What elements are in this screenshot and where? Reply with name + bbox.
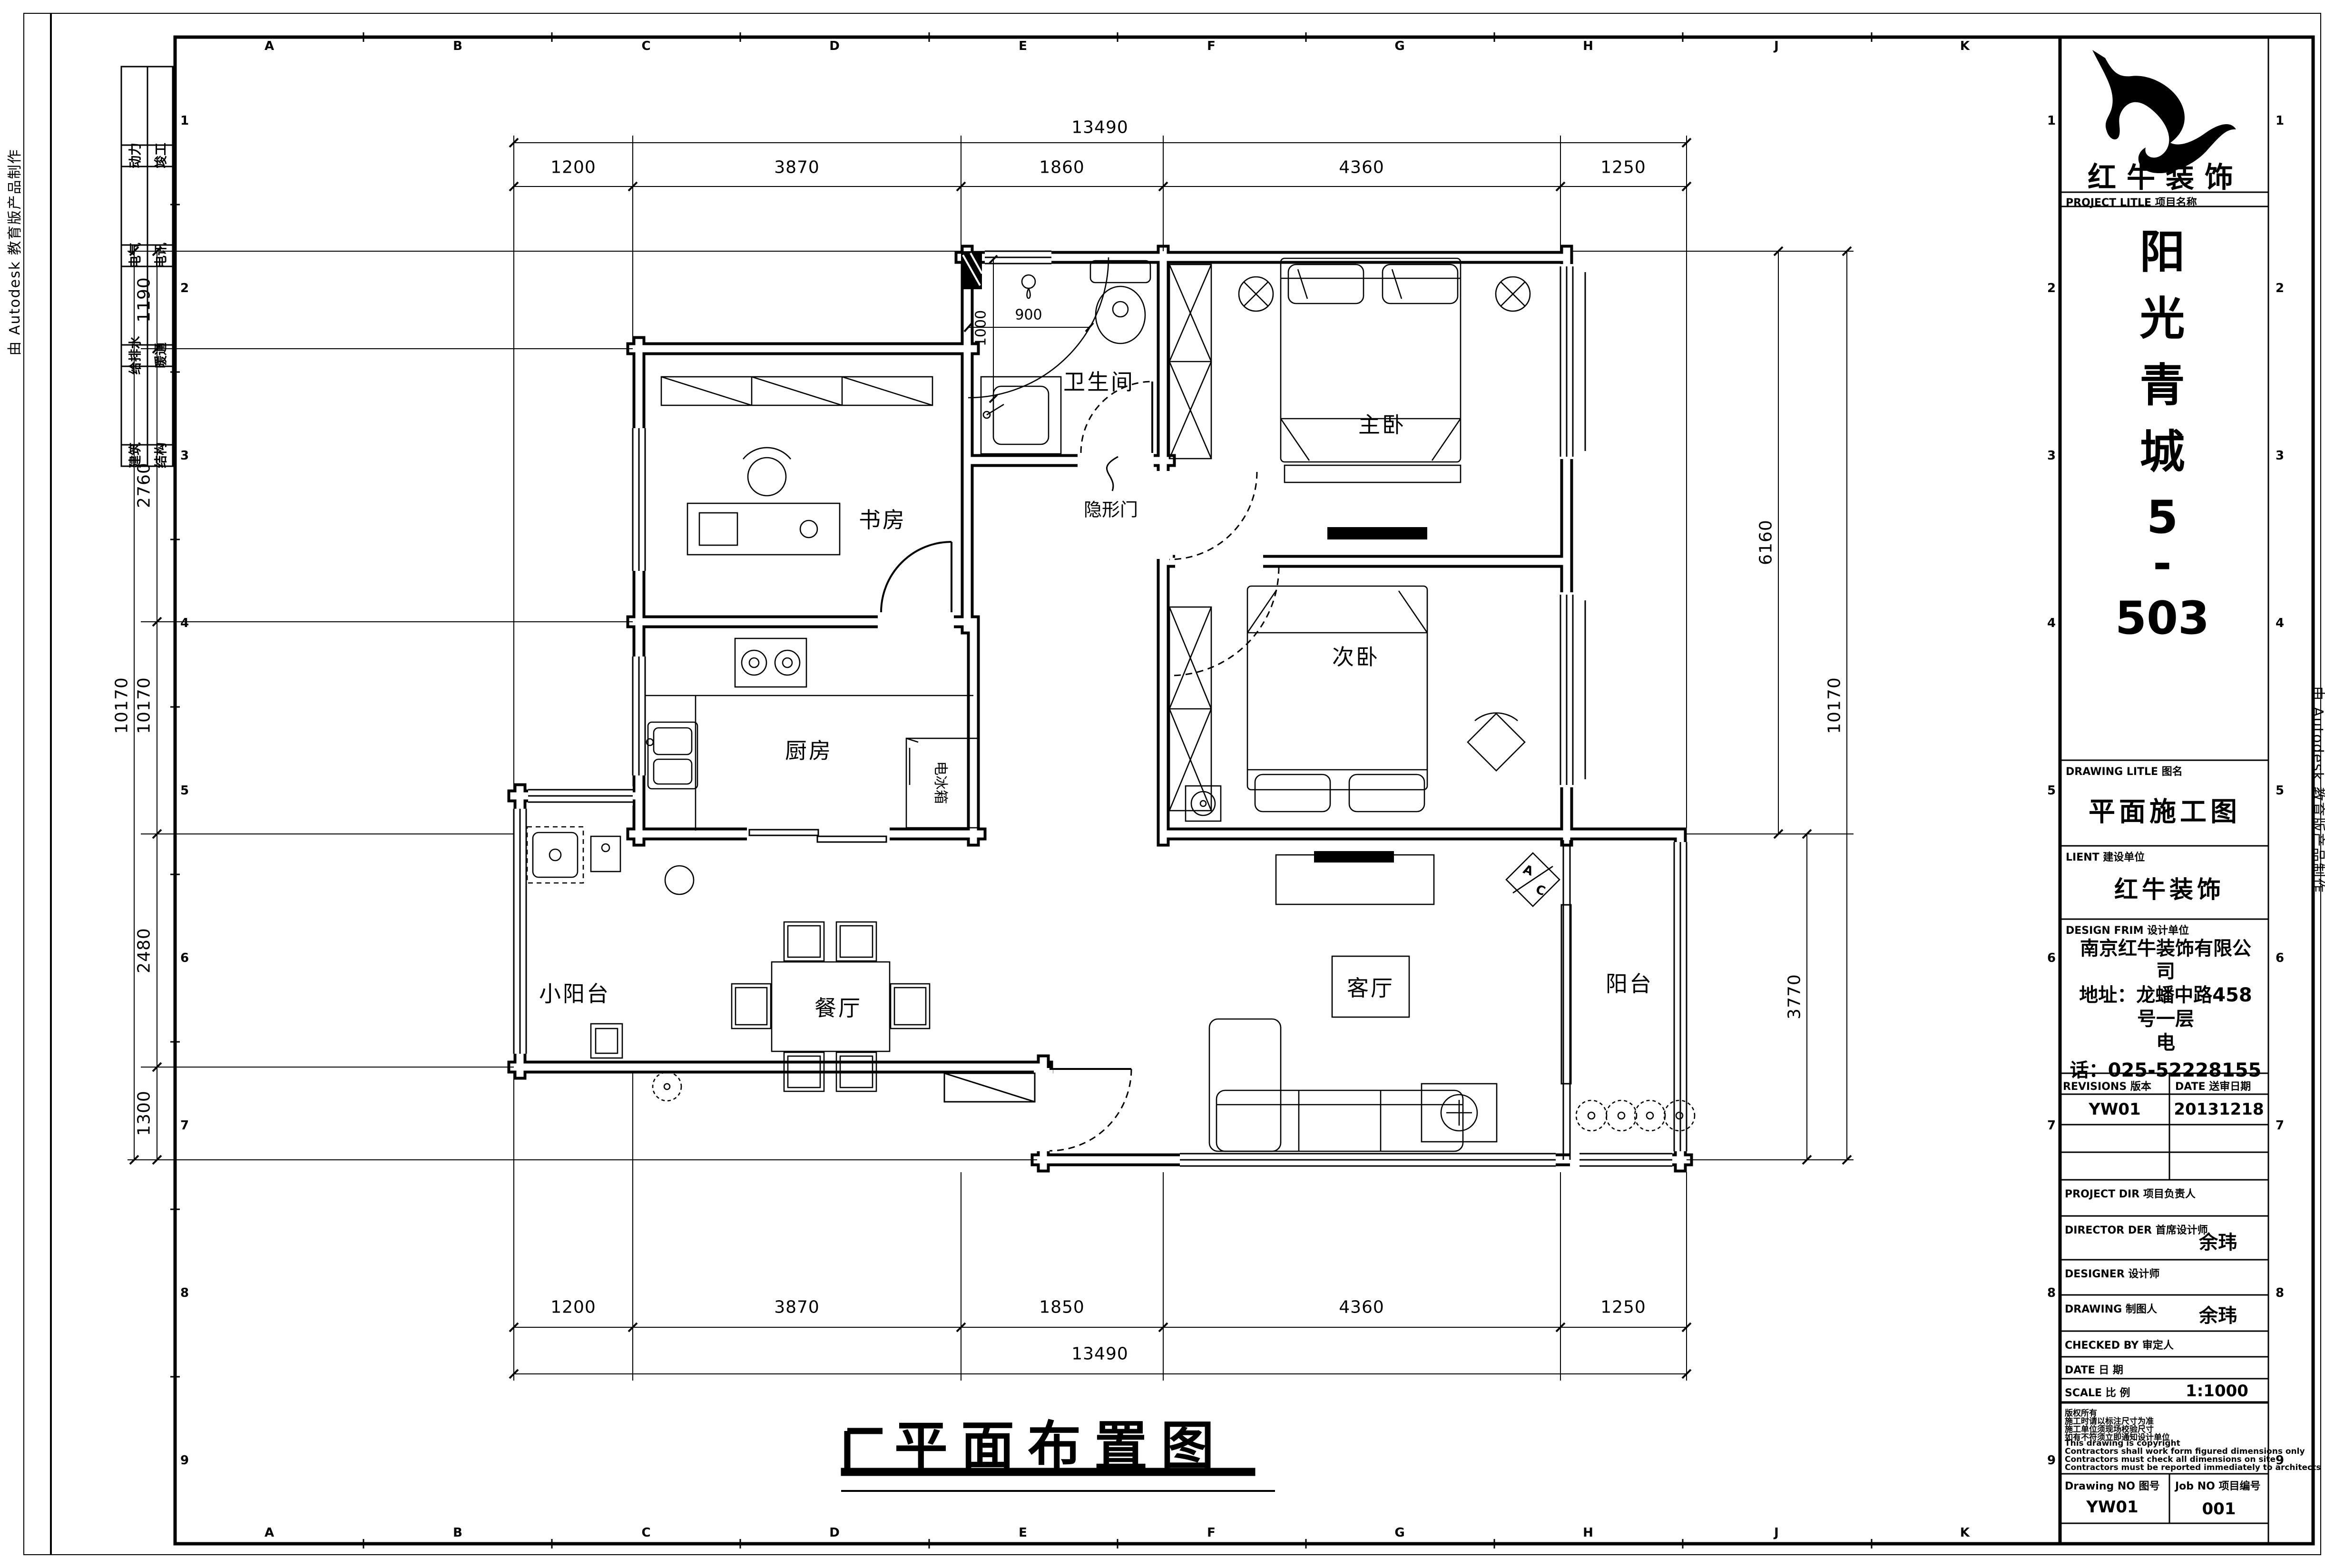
- room-label-hidden-door: 隐形门: [1084, 495, 1138, 521]
- room-label-master: 主卧: [1358, 408, 1406, 439]
- grid-row-label: 5: [180, 784, 189, 798]
- drawing-title: 平面施工图: [2089, 791, 2241, 829]
- dresser: [1327, 527, 1427, 539]
- grid-col-label: K: [1960, 1526, 1970, 1540]
- plant: [1576, 1100, 1607, 1131]
- grid-col-label: B: [453, 39, 462, 53]
- second-bed: [1247, 586, 1427, 790]
- project-name-char: 光: [2139, 283, 2185, 348]
- chaise: [1209, 1019, 1281, 1151]
- dimension-ticks: [130, 138, 1851, 1378]
- scale-value: 1:1000: [2186, 1382, 2248, 1401]
- project-name-char: 阳: [2139, 216, 2185, 281]
- grid-col-label: E: [1019, 39, 1027, 53]
- project-name-char: 5: [2147, 491, 2178, 544]
- grid-col-label: E: [1019, 1526, 1027, 1540]
- director-name: 余玮: [2199, 1227, 2237, 1254]
- label-fridge: 电冰箱: [932, 761, 952, 804]
- project-label: PROJECT LITLE 项目名称: [2066, 194, 2197, 209]
- grid-row-label: 3: [2276, 449, 2284, 463]
- dim-bath-width: 900: [1015, 307, 1042, 323]
- kitchen-sink: [648, 722, 697, 789]
- dim-left-overall: 10170: [112, 677, 132, 734]
- dim-bath-depth: 1000: [973, 310, 990, 346]
- grid-row-label: 4: [180, 616, 189, 630]
- grid-row-label: 4: [2047, 616, 2056, 630]
- design-firm-line: 电: [2156, 1027, 2175, 1055]
- project-name-char: 青: [2139, 349, 2185, 414]
- room-label-second: 次卧: [1332, 640, 1380, 671]
- job-no-value: 001: [2202, 1499, 2236, 1519]
- washing-machine: [527, 827, 583, 883]
- grid-row-label: 5: [2047, 784, 2056, 798]
- grid-col-label: G: [1394, 39, 1404, 53]
- stove: [735, 638, 806, 687]
- plant: [1635, 1100, 1665, 1131]
- grid-row-label: 2: [2047, 281, 2056, 295]
- drawing-no-value: YW01: [2086, 1498, 2138, 1517]
- room-label-balcony: 阳台: [1606, 967, 1653, 998]
- grid-col-label: H: [1583, 39, 1593, 53]
- grid-row-label: 8: [180, 1286, 189, 1300]
- grid-row-label: 1: [180, 114, 189, 128]
- dim-bottom: 1250: [1600, 1298, 1646, 1317]
- study-chair: [748, 458, 786, 496]
- grid-col-label: J: [1774, 1526, 1779, 1540]
- job-no-label: Job NO 项目编号: [2175, 1478, 2260, 1493]
- grid-col-label: J: [1774, 39, 1779, 53]
- dim-bottom: 1200: [550, 1298, 596, 1317]
- stamp-plumbing: 给排水: [125, 336, 144, 375]
- drawing-by-name: 余玮: [2199, 1300, 2237, 1328]
- toilet-tank: [1090, 261, 1150, 283]
- project-name-char: -: [2153, 538, 2171, 590]
- client-name: 红牛装饰: [2114, 871, 2225, 905]
- dim-top: 3870: [774, 158, 820, 177]
- drawing-title-label: DRAWING LITLE 图名: [2066, 763, 2183, 778]
- dim-bottom: 4360: [1339, 1298, 1384, 1317]
- grid-row-label: 9: [180, 1453, 189, 1468]
- stamp-hvac: 暖通: [151, 343, 169, 368]
- stool: [665, 866, 694, 894]
- revisions-label: REVISIONS 版本: [2063, 1078, 2151, 1093]
- dim-left: 2760: [135, 462, 154, 508]
- stamp-electrical: 电气: [125, 243, 144, 268]
- grid-row-label: 3: [180, 449, 189, 463]
- dim-bottom-overall: 13490: [1071, 1344, 1128, 1364]
- room-label-dining: 餐厅: [814, 991, 862, 1022]
- grid-row-label: 5: [2276, 784, 2284, 798]
- grid-row-label: 6: [2047, 951, 2056, 965]
- room-label-living: 客厅: [1347, 971, 1394, 1002]
- grid-row-label: 4: [2276, 616, 2284, 630]
- stamp-telecom: 电讯: [151, 243, 169, 268]
- grid-row-label: 6: [2276, 951, 2284, 965]
- revision-no: YW01: [2089, 1100, 2140, 1119]
- dim-right-overall: 10170: [1825, 677, 1844, 734]
- dim-left: 2480: [135, 928, 154, 973]
- revisions-date-label: DATE 送审日期: [2175, 1078, 2251, 1093]
- shower-head: [1022, 275, 1035, 288]
- stamp-power: 动力: [125, 143, 144, 168]
- brand-name: 红牛装饰: [2088, 155, 2244, 196]
- drawing-no-label: Drawing NO 图号: [2065, 1478, 2160, 1493]
- grid-row-label: 6: [180, 951, 189, 965]
- scale-label: SCALE 比 例: [2065, 1384, 2130, 1400]
- grid-col-label: F: [1207, 1526, 1216, 1540]
- plan-title: 平面布置图: [894, 1403, 1227, 1480]
- grid-col-label: B: [453, 1526, 462, 1540]
- room-label-kitchen: 厨房: [785, 734, 833, 765]
- grid-col-label: C: [641, 39, 650, 53]
- autodesk-note-right: 由 Autodesk 教育版产品制作: [2309, 686, 2325, 893]
- dim-left-overall-inner: 10170: [135, 677, 154, 734]
- room-label-study: 书房: [859, 503, 906, 534]
- drawing-canvas: [0, 0, 2325, 1568]
- grid-row-label: 1: [2047, 114, 2056, 128]
- grid-col-label: G: [1394, 1526, 1404, 1540]
- copyright-line: Contractors must be reported immediately…: [2065, 1463, 2321, 1472]
- grid-row-label: 8: [2047, 1286, 2056, 1300]
- grid-col-label: C: [641, 1526, 650, 1540]
- bedroom-chair: [1468, 714, 1525, 771]
- dim-left: 1300: [135, 1090, 154, 1136]
- grid-row-label: 7: [2047, 1118, 2056, 1133]
- dim-top: 4360: [1339, 158, 1384, 177]
- grid-row-label: 2: [180, 281, 189, 295]
- grid-col-label: D: [829, 1526, 840, 1540]
- director-label: DIRECTOR DER 首席设计师: [2065, 1222, 2208, 1237]
- sheet-borders: [24, 13, 2321, 1555]
- room-label-small-balcony: 小阳台: [539, 977, 610, 1008]
- project-name-char: 城: [2139, 416, 2185, 481]
- autodesk-note-left: 由 Autodesk 教育版产品制作: [3, 148, 24, 355]
- tv: [1314, 851, 1394, 862]
- grid-row-label: 7: [2276, 1118, 2284, 1133]
- dim-left: 1190: [135, 277, 154, 323]
- project-dir-label: PROJECT DIR 项目负责人: [2065, 1186, 2196, 1201]
- grid-row-label: 3: [2047, 449, 2056, 463]
- grid-col-label: A: [265, 39, 274, 53]
- grid-col-label: D: [829, 39, 840, 53]
- dim-right-lower: 3770: [1785, 974, 1805, 1019]
- dim-top: 1200: [550, 158, 596, 177]
- date-label: DATE 日 期: [2065, 1362, 2123, 1377]
- room-label-bath: 卫生间: [1063, 365, 1135, 396]
- sb-sink: [591, 836, 620, 872]
- dim-bottom: 1850: [1039, 1298, 1085, 1317]
- balcony-partition: [1561, 840, 1571, 1160]
- grid-col-label: H: [1583, 1526, 1593, 1540]
- dim-bottom: 3870: [774, 1298, 820, 1317]
- plant: [653, 1072, 681, 1101]
- client-label: LIENT 建设单位: [2066, 849, 2145, 864]
- dim-right-upper: 6160: [1756, 519, 1776, 565]
- plant: [1606, 1100, 1637, 1131]
- grid-col-label: A: [265, 1526, 274, 1540]
- project-name-char: 503: [2115, 592, 2209, 645]
- stamp-asbuilt: 竣工: [151, 143, 169, 168]
- door-leaves: [881, 382, 1152, 1069]
- dimension-lines: [128, 136, 1854, 1381]
- grid-row-label: 7: [180, 1118, 189, 1133]
- grid-row-label: 2: [2276, 281, 2284, 295]
- grid-row-label: 9: [2047, 1453, 2056, 1468]
- dim-top-overall: 13490: [1071, 118, 1128, 137]
- grid-row-label: 8: [2276, 1286, 2284, 1300]
- dim-top: 1860: [1039, 158, 1085, 177]
- cad-sheet: 由 Autodesk 教育版产品制作 由 Autodesk 教育版产品制作 A …: [0, 0, 2325, 1568]
- revision-date: 20131218: [2174, 1100, 2264, 1119]
- dim-top: 1250: [1600, 158, 1646, 177]
- grid-col-label: F: [1207, 39, 1216, 53]
- drawing-by-label: DRAWING 制图人: [2065, 1301, 2157, 1316]
- grid-row-label: 1: [2276, 114, 2284, 128]
- bed-bench: [1285, 465, 1461, 482]
- grid-col-label: K: [1960, 39, 1970, 53]
- designer-label: DESIGNER 设计师: [2065, 1265, 2159, 1281]
- checked-by-label: CHECKED BY 审定人: [2065, 1337, 2174, 1352]
